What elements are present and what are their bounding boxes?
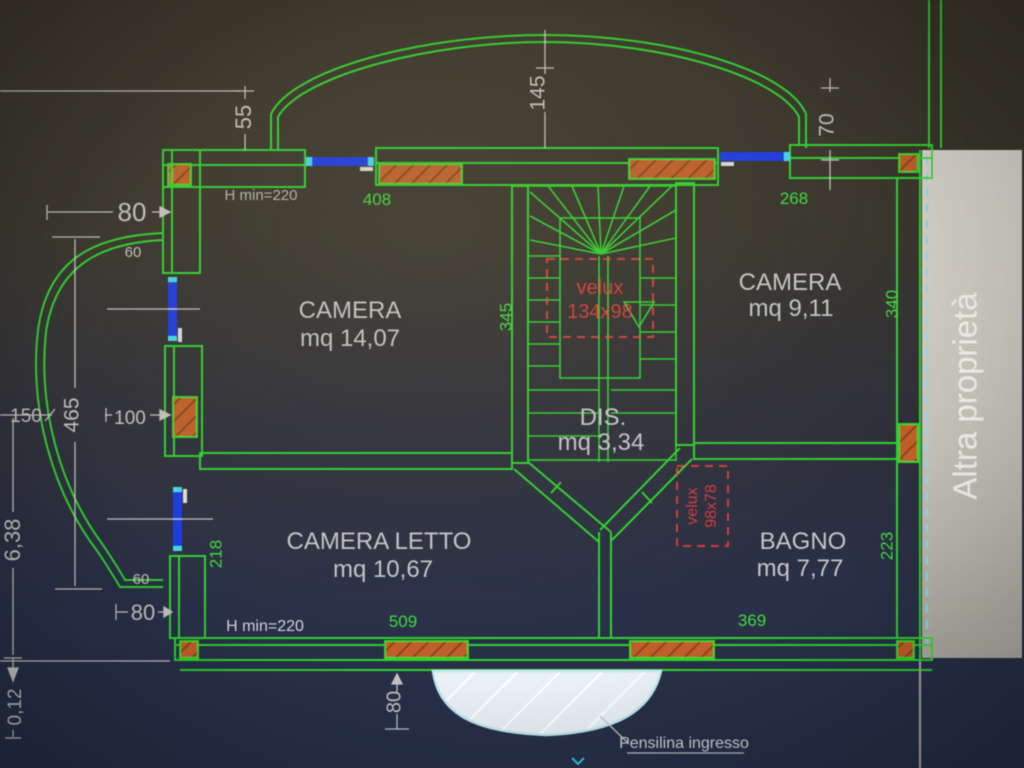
cad-floor-plan-photo: Altra proprietà: [0, 0, 1024, 768]
photo-vignette: [0, 0, 1024, 768]
floor-plan-svg: Altra proprietà: [0, 0, 1024, 768]
